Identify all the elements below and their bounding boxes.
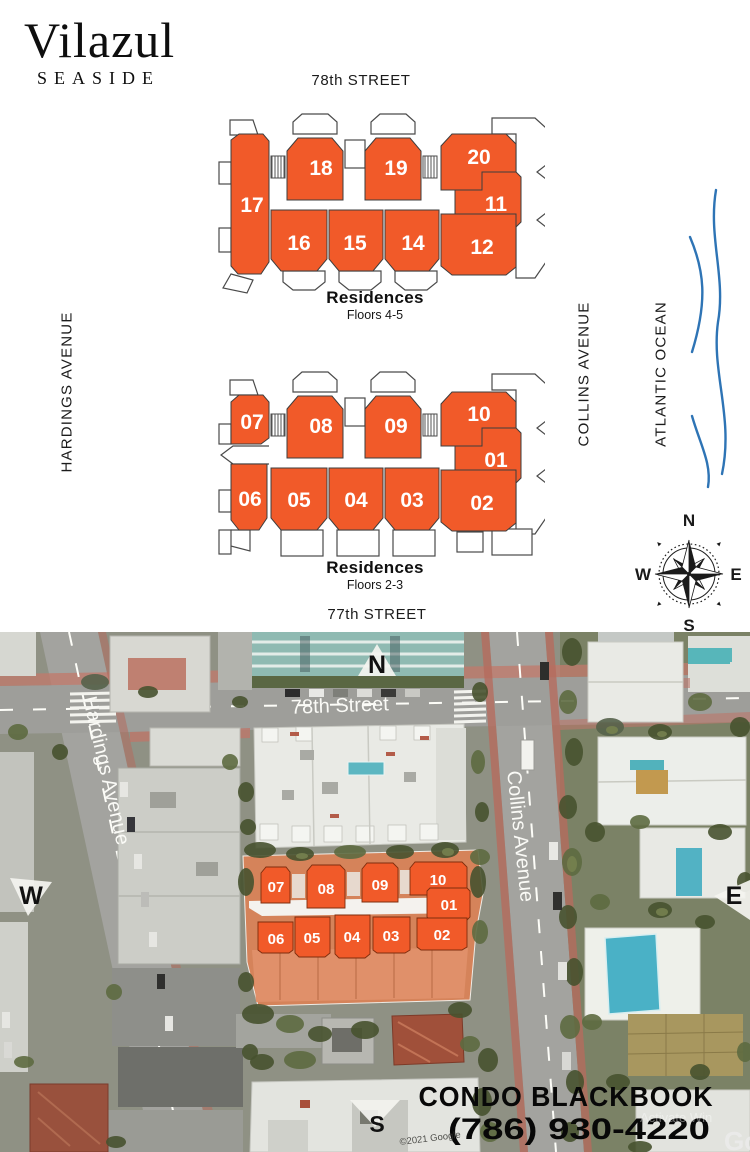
tree-canopy — [106, 984, 122, 1000]
plan-unit-label-14: 14 — [401, 232, 425, 255]
tree-canopy — [222, 754, 238, 770]
compass-rose: N E S W — [633, 508, 748, 634]
brand-subtitle: SEASIDE — [37, 68, 175, 89]
map-unit-label-01: 01 — [441, 897, 458, 914]
map-marker-w: W — [19, 882, 43, 910]
plan-caption-lower: Residences Floors 2-3 — [205, 558, 545, 592]
plan-unit-label-12: 12 — [470, 236, 493, 259]
stairs-hatch — [271, 156, 285, 178]
map-marker-s: S — [369, 1111, 384, 1137]
plan-unit-label-11: 11 — [485, 193, 508, 216]
stairs-hatch — [271, 414, 285, 436]
tree-canopy — [351, 1021, 379, 1039]
plan-subtitle: Floors 4-5 — [205, 308, 545, 322]
tree-canopy — [708, 824, 732, 840]
tree-canopy — [559, 690, 577, 714]
plan-units-floors-4-5: 171819201112161514 — [231, 134, 521, 275]
tree-canopy — [244, 842, 276, 858]
street-label-77th: 77th STREET — [232, 606, 522, 623]
tree-canopy — [138, 686, 158, 698]
tree-canopy — [8, 724, 28, 740]
map-street-78th-label: 78th Street — [291, 693, 390, 718]
plan-unit-label-04: 04 — [344, 489, 368, 512]
tree-canopy — [478, 1048, 498, 1072]
avenue-label-hardings: HARDINGS AVENUE — [59, 311, 76, 472]
tree-canopy — [565, 738, 583, 766]
tree-canopy — [688, 693, 712, 711]
ocean-label: ATLANTIC OCEAN — [653, 301, 670, 447]
aerial-map: 07080910010605040302 — [0, 632, 750, 1152]
compass-w: W — [635, 565, 652, 584]
tree-canopy — [657, 731, 667, 737]
plan-unit-label-03: 03 — [400, 489, 423, 512]
compass-n: N — [683, 511, 695, 530]
plan-unit-label-10: 10 — [467, 403, 490, 426]
street-label-78th: 78th STREET — [216, 72, 506, 89]
plan-unit-label-01: 01 — [484, 449, 508, 472]
plan-unit-label-20: 20 — [467, 146, 490, 169]
plan-unit-label-16: 16 — [287, 232, 310, 255]
ocean-wave-lines — [678, 182, 750, 492]
brand-name: Vilazul — [24, 14, 175, 67]
map-marker-n: N — [368, 651, 386, 679]
tree-canopy — [52, 744, 68, 760]
plan-unit-label-05: 05 — [287, 489, 311, 512]
plan-unit-label-08: 08 — [309, 415, 333, 438]
plan-subtitle: Floors 2-3 — [205, 578, 545, 592]
tree-canopy — [106, 1136, 126, 1148]
tree-canopy — [242, 1044, 258, 1060]
map-unit-label-04: 04 — [344, 929, 361, 946]
plan-title: Residences — [205, 558, 545, 578]
tree-canopy — [284, 1051, 316, 1069]
map-unit-label-03: 03 — [383, 928, 400, 945]
tree-canopy — [560, 1015, 580, 1039]
tree-canopy — [585, 822, 605, 842]
tree-canopy — [296, 853, 308, 859]
tree-canopy — [238, 868, 254, 896]
stairs-hatch — [423, 414, 437, 436]
keyplan-floors-4-5: 171819201112161514 — [205, 110, 545, 296]
map-marker-e: E — [726, 882, 743, 910]
footer-company: CONDO BLACKBOOK — [419, 1081, 714, 1112]
tree-canopy — [562, 638, 582, 666]
tree-canopy — [582, 1014, 602, 1030]
compass-e: E — [730, 565, 741, 584]
plan-caption-upper: Residences Floors 4-5 — [205, 288, 545, 322]
tree-canopy — [630, 815, 650, 829]
plan-title: Residences — [205, 288, 545, 308]
map-unit-label-10: 10 — [430, 872, 447, 889]
tree-canopy — [606, 726, 618, 734]
tree-canopy — [565, 958, 583, 986]
tree-canopy — [472, 682, 488, 702]
tree-canopy — [276, 1015, 304, 1033]
plan-unit-label-18: 18 — [309, 157, 333, 180]
plan-unit-label-06: 06 — [238, 488, 261, 511]
tree-canopy — [308, 1026, 332, 1042]
plan-unit-label-17: 17 — [240, 194, 263, 217]
tree-canopy — [470, 866, 486, 898]
tree-canopy — [471, 750, 485, 774]
plan-unit-label-15: 15 — [343, 232, 367, 255]
brand-logo: Vilazul SEASIDE — [24, 14, 175, 89]
tree-canopy — [690, 1064, 710, 1080]
tree-canopy — [730, 717, 750, 737]
tree-canopy — [559, 795, 577, 819]
google-logo-fragment: Go — [724, 1126, 750, 1152]
tree-canopy — [232, 696, 248, 708]
tree-canopy — [442, 848, 454, 856]
keyplan-floors-2-3: 07080910010206050403 — [205, 368, 545, 558]
plan-unit-label-19: 19 — [384, 157, 407, 180]
map-unit-label-06: 06 — [268, 931, 285, 948]
stairs-hatch — [423, 156, 437, 178]
avenue-label-collins: COLLINS AVENUE — [576, 302, 593, 447]
plan-unit-label-07: 07 — [240, 411, 263, 434]
tree-canopy — [460, 1036, 480, 1052]
activate-watermark: Activate Win — [640, 1110, 712, 1125]
tree-canopy — [567, 856, 577, 872]
plan-unit-label-02: 02 — [470, 492, 493, 515]
center-condo — [254, 724, 466, 848]
tree-canopy — [475, 802, 489, 822]
tree-canopy — [472, 920, 488, 944]
tree-canopy — [590, 894, 610, 910]
tree-canopy — [14, 1056, 34, 1068]
map-unit-label-08: 08 — [318, 881, 335, 898]
tree-canopy — [240, 819, 256, 835]
tree-canopy — [238, 972, 254, 992]
plan-unit-label-09: 09 — [384, 415, 407, 438]
plan-units-floors-2-3: 07080910010206050403 — [231, 392, 521, 531]
map-unit-label-05: 05 — [304, 930, 321, 947]
tree-canopy — [242, 1004, 274, 1024]
map-unit-label-07: 07 — [268, 879, 285, 896]
map-unit-label-02: 02 — [434, 927, 451, 944]
tree-canopy — [448, 1002, 472, 1018]
vilazul-keyplan-page: Vilazul SEASIDE 78th STREET 17181 — [0, 0, 750, 1152]
tree-canopy — [81, 674, 109, 690]
tree-canopy — [386, 845, 414, 859]
tree-canopy — [470, 849, 490, 865]
tree-canopy — [238, 782, 254, 802]
tree-canopy — [695, 915, 715, 929]
tree-canopy — [656, 908, 668, 916]
tree-canopy — [334, 845, 366, 859]
map-unit-label-09: 09 — [372, 877, 389, 894]
